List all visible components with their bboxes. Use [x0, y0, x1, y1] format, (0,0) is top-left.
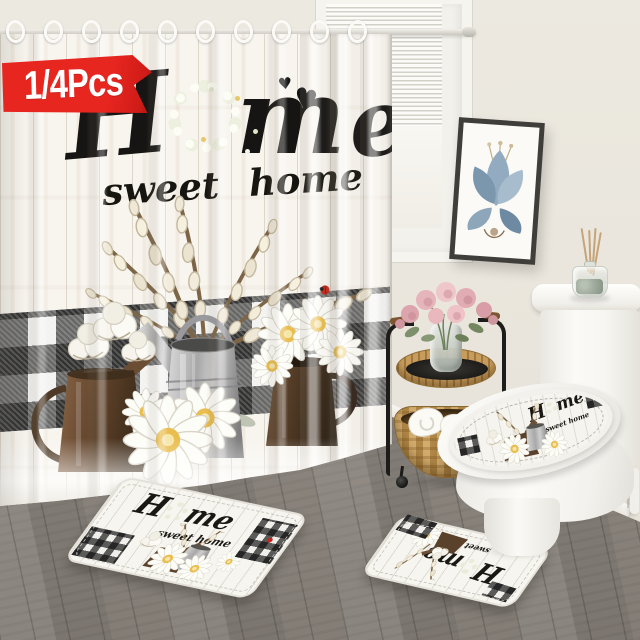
pcs-badge-label: 1/4Pcs [23, 59, 123, 108]
blue-botanical-icon [461, 134, 533, 248]
reed-diffuser-jar [572, 266, 608, 298]
toilet-pedestal [484, 498, 560, 556]
cotton-flower-icon [93, 302, 136, 340]
diffuser-contents [576, 279, 603, 294]
pcs-badge: 1/4Pcs [2, 55, 152, 113]
wreath-icon [168, 80, 242, 154]
curtain-fabric-folds [300, 34, 392, 480]
wall-art-frame [449, 117, 545, 265]
cart-wheel [396, 476, 408, 488]
curtain-rod-end-cap [462, 27, 476, 37]
product-photo-bathroom-set: H m e ♥ ♥ sweet home [0, 0, 640, 640]
rose-blooms [395, 282, 498, 329]
plaid-patch [585, 391, 606, 408]
wall-art-print [454, 123, 539, 260]
heart-icon: ♥ [277, 75, 293, 92]
towel-swirl [418, 414, 436, 432]
pink-rose-bouquet [392, 278, 502, 352]
cotton-flower-icon [138, 530, 167, 549]
